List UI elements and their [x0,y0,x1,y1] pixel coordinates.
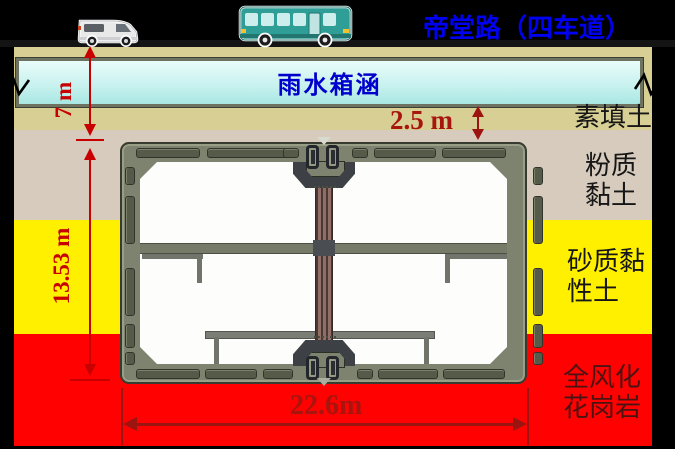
roof-panel-slot [283,148,299,158]
dimension-culvert-depth: 7 m [51,82,77,118]
rainwater-box-culvert: 雨水箱涵 [16,58,643,107]
wall-panel-slot [533,324,543,348]
arrowhead-down [472,129,484,140]
bottom-bolt-slot [326,356,339,380]
dimension-structure-width: 22.6m [290,390,362,422]
left-bracket-leg [197,254,202,283]
arrowhead-right [513,417,527,431]
culvert-label: 雨水箱涵 [278,65,382,100]
arrowhead-up [472,106,484,117]
center-marker-top [317,137,331,145]
wall-panel-slot [533,167,543,185]
dimension-line-1353m [89,153,91,366]
left-bracket-horizontal [142,254,203,259]
arrowhead-down [84,124,96,136]
label-silty-clay: 粉质 黏土 [585,150,637,210]
floor-panel-slot [443,369,505,379]
floor-panel-slot [136,369,200,379]
right-bracket-leg [445,254,450,283]
roof-panel-slot [136,148,200,158]
dimension-structure-depth: 13.53 m [49,228,75,305]
label-weathered-granite: 全风化 花岗岩 [563,362,641,422]
dimension-tick [76,139,104,141]
roof-panel-slot [374,148,436,158]
dimension-tick [70,379,110,381]
top-bolt-slot [306,145,319,169]
wall-panel-slot [125,268,135,316]
break-mark-left [1,70,31,103]
arrowhead-down [84,364,96,376]
geotechnical-cross-section-diagram: 帝堂路（四车道） 雨水箱涵 [0,0,675,449]
wall-panel-slot [533,196,543,244]
lower-platform-right-leg [424,337,429,364]
label-plain-fill: 素填土 [574,102,652,132]
arrowhead-up [84,46,96,58]
wall-panel-slot [125,196,135,244]
top-bolt-slot [326,145,339,169]
width-end-tick-right [527,388,529,445]
top-joint-dowels [314,186,336,188]
break-mark-right [633,70,663,103]
dimension-cover-thickness: 2.5 m [390,105,453,136]
wall-panel-slot [125,167,135,185]
bottom-joint-dowels [314,336,336,338]
bus-image [237,3,357,48]
arrowhead-up [84,148,96,160]
lower-platform-left-leg [214,337,219,364]
wall-panel-slot [533,268,543,316]
roof-panel-slot [352,148,368,158]
van-image [76,12,144,48]
floor-panel-slot [205,369,257,379]
floor-panel-slot [263,369,293,379]
bottom-bolt-slot [306,356,319,380]
floor-panel-slot [378,369,438,379]
column-mid-joint [313,240,335,256]
wall-panel-slot [125,324,135,348]
wall-panel-slot [125,352,135,365]
road-title: 帝堂路（四车道） [423,8,631,45]
roof-panel-slot [442,148,506,158]
dimension-line-226m [130,423,520,426]
floor-panel-slot [357,369,373,379]
center-marker-bottom [317,378,331,386]
right-bracket-horizontal [445,254,507,259]
dimension-line-7m [89,52,91,130]
label-sandy-clay: 砂质黏 性土 [567,246,645,306]
arrowhead-left [123,417,137,431]
wall-panel-slot [533,352,543,365]
central-column [315,163,333,360]
